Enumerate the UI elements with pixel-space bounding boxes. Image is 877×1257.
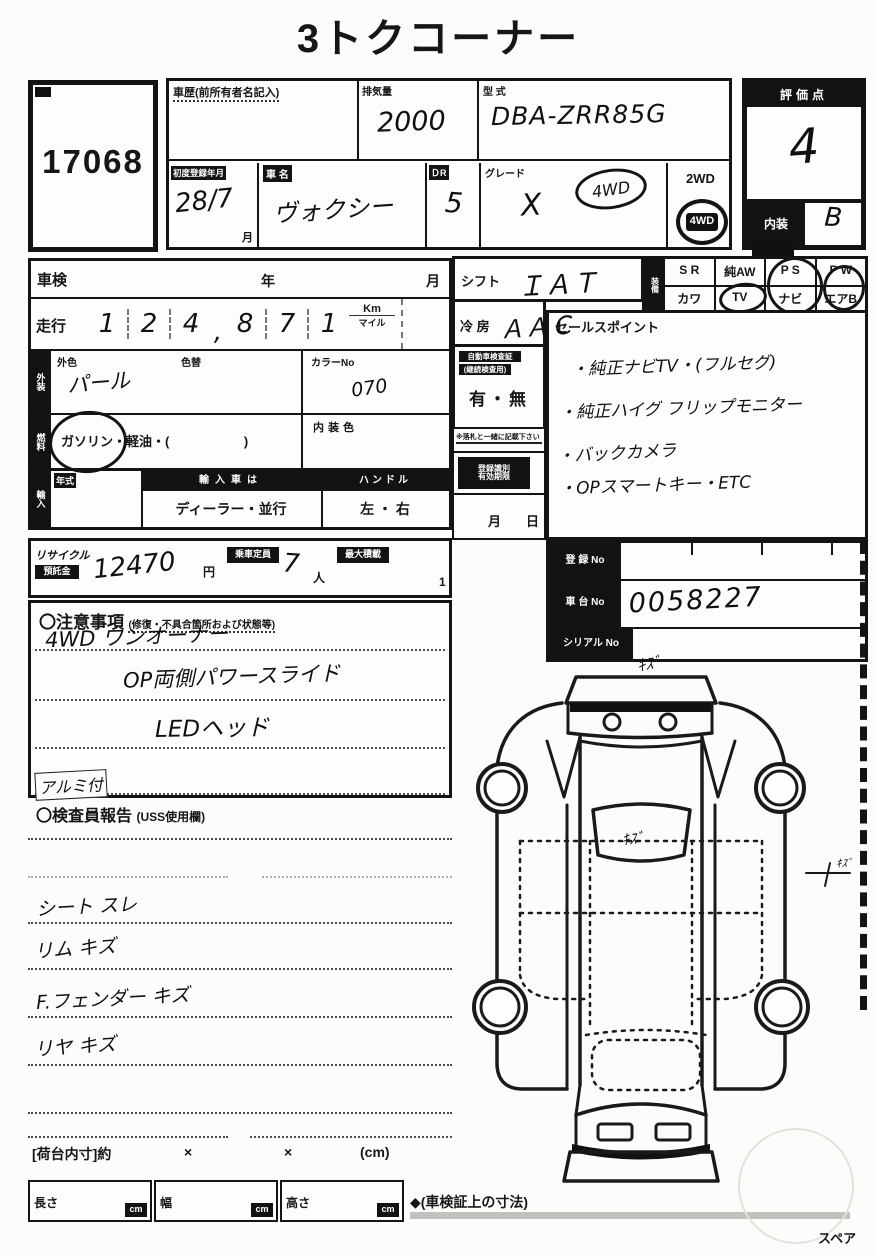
grade-value: X xyxy=(520,187,542,223)
load-value: 1 xyxy=(439,575,446,589)
dotted-rule xyxy=(28,1016,452,1018)
first-reg-value: 28/7 xyxy=(174,181,259,219)
displacement-value: 2000 xyxy=(376,104,477,138)
height-box: 高さ cm xyxy=(280,1180,404,1222)
drive-4wd-circle: 4WD xyxy=(676,199,728,245)
equipment-side-label: 装備 xyxy=(645,259,665,311)
mileage-label: 走行 xyxy=(36,315,66,336)
drive-2wd: 2WD xyxy=(686,171,732,186)
color-row: 外装 外色 パール 色替 カラーNo 070 xyxy=(31,351,449,415)
import-chip: 輸入 xyxy=(31,471,51,527)
shift-cell: シフト ＩＡＴ xyxy=(452,256,644,302)
dotted-rule xyxy=(28,838,452,840)
capacity-label: 乗車定員 xyxy=(227,547,279,563)
sales-points-label: セールスポイント xyxy=(555,317,865,336)
car-name-value: ヴォクシー xyxy=(272,184,426,230)
mileage-digit: 1 xyxy=(309,309,349,339)
cm-chip: cm xyxy=(125,1203,147,1217)
drive-cell: 2WD 4WD xyxy=(668,163,732,247)
equip-col-aw: 純AW xyxy=(716,259,767,285)
rating-box: 評価点 4 内装 B xyxy=(742,78,866,250)
interior-row: 内装 B xyxy=(747,199,861,245)
damage-mark-front: ｷｽﾞ xyxy=(636,653,662,675)
month-day-cell: 月 日 xyxy=(452,493,546,540)
mileage-digit: 1 xyxy=(87,309,129,339)
cm-paren: (cm) xyxy=(360,1144,390,1160)
interior-value: B xyxy=(804,202,862,247)
shaken-month-label: 月 xyxy=(426,271,440,291)
ac-label: 冷 房 xyxy=(460,316,490,335)
multiply-sign: × xyxy=(284,1144,292,1160)
reg-no-row: 登 録 No xyxy=(549,543,865,581)
sales-line-1: ・純正ナビTV・(フルセグ) xyxy=(571,345,866,380)
import-cell: 輸入車は ディーラー・並行 xyxy=(141,471,323,527)
exterior-color-value: パール xyxy=(66,364,131,399)
score-value: 4 xyxy=(745,115,863,179)
recycle-label-line1: リサイクル xyxy=(35,547,89,563)
inspector-line-1: シート スレ xyxy=(35,889,137,921)
fuel-paren-close: ) xyxy=(244,434,248,449)
import-label: 輸入車は xyxy=(141,471,321,491)
exterior-color-label: 外色 xyxy=(57,354,77,369)
docs-chip-1: 自動車検査証 xyxy=(459,351,521,362)
shaken-row: 車検 年 月 xyxy=(31,261,449,299)
lot-number-box: 17068 xyxy=(28,80,158,252)
import-value: ディーラー・並行 xyxy=(141,499,321,519)
shaken-label: 車検 xyxy=(37,269,67,290)
chassis-no-row: 車 台 No 0058227 xyxy=(549,579,865,629)
load-label: 最大積載 xyxy=(337,547,389,563)
car-diagram: ｷｽﾞ ｷｽﾞ ｷｽﾞ xyxy=(450,645,870,1190)
reg-limit-cell: 登録識別 有効期限 xyxy=(452,451,546,495)
inspector-subtitle: (USS使用欄) xyxy=(136,810,205,824)
door-label: ＤR xyxy=(429,165,449,180)
interior-color-cell: 内装色 xyxy=(301,415,449,468)
equip-val-leather: カワ xyxy=(665,287,716,311)
shaken-year-label: 年 xyxy=(261,271,275,291)
header-table: 車歴(前所有者名記入) 排気量 2000 型 式 DBA-ZRR85G 初度登録… xyxy=(166,78,732,250)
notes-line-2: OP両側パワースライド xyxy=(123,657,341,695)
notes-line-4: アルミ付 xyxy=(34,769,107,801)
model-year-label: 年式 xyxy=(54,473,76,488)
chassis-no-label: 車 台 No xyxy=(549,579,621,627)
first-reg-cell: 初度登録年月 28/7 月 xyxy=(169,163,259,247)
displacement-label: 排気量 xyxy=(362,83,477,98)
color-change-label: 色替 xyxy=(181,354,201,369)
mileage-digits: 1 2 4 , 8 7 1 xyxy=(87,299,349,349)
history-label: 車歴(前所有者名記入) xyxy=(173,84,279,102)
mileage-digit: 4 xyxy=(171,309,211,339)
model-code-value: DBA-ZRR85G xyxy=(491,98,732,131)
dotted-rule xyxy=(28,1136,228,1138)
recycle-yen: 円 xyxy=(203,563,215,580)
mileage-unit: Km マイル xyxy=(349,303,395,329)
dotted-rule xyxy=(35,747,445,749)
width-box: 幅 cm xyxy=(154,1180,278,1222)
equip-col-sr: S R xyxy=(665,259,716,285)
notes-line-1: 4WD ワンオーナー xyxy=(45,618,229,654)
fuel-row: 燃料 ガソリン・軽油・( ) 内装色 xyxy=(31,415,449,471)
mileage-digit: 2 xyxy=(129,309,171,339)
first-reg-unit: 月 xyxy=(242,229,253,245)
dotted-rule xyxy=(28,922,452,924)
dimension-note: ◆(車検証上の寸法) xyxy=(410,1192,528,1212)
reg-limit-line2: 有効期限 xyxy=(478,473,510,481)
auction-sheet: 3トクコーナー 17068 車歴(前所有者名記入) 排気量 2000 型 式 D… xyxy=(0,0,877,1257)
dotted-rule xyxy=(35,699,445,701)
car-name-cell: 車 名 ヴォクシー xyxy=(259,163,427,247)
mileage-spare-cell xyxy=(401,299,403,349)
history-cell: 車歴(前所有者名記入) xyxy=(169,81,359,161)
damage-mark-side: ｷｽﾞ xyxy=(836,857,853,870)
note-text: ※落札と一緒に記載下さい xyxy=(456,432,542,444)
reg-limit-box: 登録識別 有効期限 xyxy=(458,457,530,489)
month-label: 月 xyxy=(488,511,501,530)
day-label: 日 xyxy=(526,511,539,530)
inspector-line-2: リム キズ xyxy=(33,931,117,964)
dotted-rule xyxy=(28,876,228,878)
page-title: 3トクコーナー xyxy=(0,6,877,64)
notes-line-3: LEDヘッド xyxy=(155,708,270,744)
displacement-cell: 排気量 2000 xyxy=(359,81,479,161)
grade-note: 4WD xyxy=(591,177,632,201)
bed-dimension-row: [荷台内寸]約 × × (cm) xyxy=(32,1144,452,1164)
handle-value: 左 ・ 右 xyxy=(321,499,449,519)
inspector-line-4: リヤ キズ xyxy=(33,1029,117,1062)
damage-mark-windshield: ｷｽﾞ xyxy=(621,829,645,849)
spare-label: スペア xyxy=(818,1228,856,1247)
door-cell: ＤR 5 xyxy=(427,163,481,247)
length-box: 長さ cm xyxy=(28,1180,152,1222)
ac-cell: 冷 房 ＡＡＣ xyxy=(452,299,546,347)
lot-number: 17068 xyxy=(33,143,153,181)
tick-mark xyxy=(831,543,833,555)
sales-line-3: ・バックカメラ xyxy=(557,426,866,467)
model-code-cell: 型 式 DBA-ZRR85G xyxy=(479,81,732,161)
length-label: 長さ xyxy=(34,1194,58,1211)
color-no-label: カラーNo xyxy=(311,354,354,369)
dotted-rule xyxy=(28,1064,452,1066)
door-value: 5 xyxy=(444,186,480,221)
car-name-label: 車 名 xyxy=(263,165,292,182)
sales-line-2: ・純正ハイグ フリップモニター xyxy=(559,388,866,424)
color-no-value: 070 xyxy=(350,366,450,401)
inspector-title-row: 〇検査員報告 (USS使用欄) xyxy=(36,802,452,826)
cm-chip: cm xyxy=(377,1203,399,1217)
tick-mark xyxy=(691,543,693,555)
ac-value: ＡＡＣ xyxy=(498,305,575,346)
score-label: 評価点 xyxy=(747,83,861,107)
cm-chip: cm xyxy=(251,1203,273,1217)
sales-points-box: セールスポイント ・純正ナビTV・(フルセグ) ・純正ハイグ フリップモニター … xyxy=(546,310,868,540)
docs-value: 有・無 xyxy=(455,385,543,410)
import-row: 輸入 年式 輸入車は ディーラー・並行 ハンドル 左 ・ 右 xyxy=(31,471,449,527)
recycle-value: 12470 xyxy=(92,547,177,585)
interior-label: 内装 xyxy=(747,203,805,245)
first-reg-label: 初度登録年月 xyxy=(171,166,226,180)
mileage-row: 走行 1 2 4 , 8 7 1 Km マイル xyxy=(31,299,449,351)
notes-box: 〇注意事項 (修復・不具合箇所および状態等) 4WD ワンオーナー OP両側パワ… xyxy=(28,600,452,798)
chassis-no-value: 0058227 xyxy=(628,582,764,631)
reg-no-label: 登 録 No xyxy=(549,543,621,579)
vehicle-data-block: 車検 年 月 走行 1 2 4 , 8 7 1 Km マイル 外装 xyxy=(28,258,452,530)
shift-label: シフト xyxy=(461,271,500,290)
recycle-label-line2: 預託金 xyxy=(35,565,79,579)
multiply-sign: × xyxy=(184,1144,192,1160)
handle-cell: ハンドル 左 ・ 右 xyxy=(321,471,449,527)
mileage-digit: 7 xyxy=(267,309,309,339)
sales-line-4: ・OPスマートキー・ETC xyxy=(559,464,866,500)
exterior-chip: 外装 xyxy=(31,351,51,413)
grade-cell: グレード X 4WD xyxy=(481,163,668,247)
dotted-rule xyxy=(28,968,452,970)
inspector-line-3: F.フェンダー キズ xyxy=(35,980,190,1015)
equipment-grid: 装備 S R 純AW P S P W カワ TV ナビ エアB xyxy=(642,256,868,314)
recycle-label: リサイクル 預託金 xyxy=(35,547,89,579)
color-no-cell: カラーNo 070 xyxy=(301,351,449,413)
registration-block: 登 録 No 車 台 No 0058227 シリアル No xyxy=(546,540,868,662)
capacity-value: 7 xyxy=(282,548,301,579)
interior-color-label: 内装色 xyxy=(313,419,358,435)
model-year-cell: 年式 xyxy=(51,471,143,527)
shift-value: ＩＡＴ xyxy=(516,261,599,304)
bed-label: [荷台内寸]約 xyxy=(32,1146,111,1162)
mileage-digit: 8 xyxy=(225,309,267,339)
mileage-comma: , xyxy=(211,317,225,347)
capacity-unit: 人 xyxy=(313,569,325,586)
note-cell: ※落札と一緒に記載下さい xyxy=(452,427,546,453)
dotted-rule xyxy=(262,876,452,878)
inspector-report: 〇検査員報告 (USS使用欄) シート スレ リム キズ F.フェンダー キズ … xyxy=(28,800,452,1136)
corner-mark xyxy=(35,87,51,97)
inspector-title: 〇検査員報告 xyxy=(36,808,132,825)
fuel-circle xyxy=(46,407,130,477)
docs-cell: 自動車検査証 (継続検査用) 有・無 xyxy=(452,344,546,430)
km-label: Km xyxy=(349,303,395,316)
width-label: 幅 xyxy=(160,1194,172,1211)
dotted-rule xyxy=(28,1112,452,1114)
docs-chip-2: (継続検査用) xyxy=(459,364,511,375)
height-label: 高さ xyxy=(286,1194,310,1211)
dotted-rule xyxy=(250,1136,452,1138)
model-code-label: 型 式 xyxy=(483,83,732,98)
drive-4wd: 4WD xyxy=(686,213,718,231)
recycle-row: リサイクル 預託金 12470 円 乗車定員 7 人 最大積載 1 xyxy=(28,538,452,598)
mile-label: マイル xyxy=(349,316,395,329)
equipment-cells: S R 純AW P S P W カワ TV ナビ エアB xyxy=(665,259,865,311)
reg-no-value-cell xyxy=(621,543,865,579)
tick-mark xyxy=(761,543,763,555)
handle-label: ハンドル xyxy=(321,471,449,491)
